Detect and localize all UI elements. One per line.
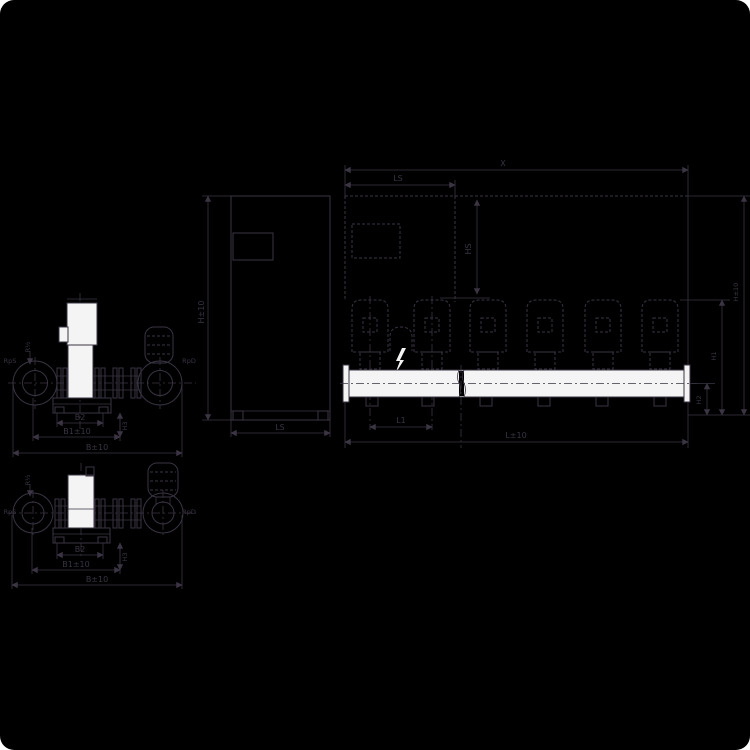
vent-port-label: R½ xyxy=(24,342,32,353)
terminal-box xyxy=(59,327,68,342)
dim-label-h3: H3 xyxy=(121,421,129,430)
dim-label-h2: H2 xyxy=(695,395,703,404)
diaphragm-tank xyxy=(148,463,178,505)
suction-port-label: RpS xyxy=(4,357,17,365)
control-box xyxy=(352,224,400,258)
discharge-port-label: RpD xyxy=(182,508,196,516)
front-view-b: B2 B1±10 B±10 H3 RpS RpD R½ xyxy=(4,463,196,589)
dim-label-h3: H3 xyxy=(121,552,129,561)
dim-label-ls-side: LS xyxy=(275,423,285,432)
dim-label-l1: L1 xyxy=(396,416,406,425)
base-frame xyxy=(53,398,111,413)
pump-motor xyxy=(585,300,621,352)
foot xyxy=(318,411,328,420)
vent-port-label: R½ xyxy=(24,475,32,486)
foot xyxy=(55,407,64,413)
control-box-side xyxy=(233,233,273,260)
motor-body xyxy=(67,303,97,345)
foot xyxy=(99,407,108,413)
foot xyxy=(233,411,243,420)
technical-drawing-canvas: B2 B1±10 B±10 H3 RpS RpD R½ xyxy=(0,0,750,750)
pump-body xyxy=(68,345,93,398)
dim-label-h-overall: H±10 xyxy=(197,301,206,324)
dim-label-l: L±10 xyxy=(505,431,526,440)
dim-label-hs: HS xyxy=(464,243,473,254)
front-view-a: B2 B1±10 B±10 H3 RpS RpD R½ xyxy=(4,293,196,457)
unit-side-outline xyxy=(231,196,330,420)
side-view: H±10 LS xyxy=(197,196,330,437)
main-view: X LS HS xyxy=(340,159,750,448)
discharge-port-label: RpD xyxy=(182,357,196,365)
pump-row xyxy=(352,300,678,369)
foot xyxy=(55,537,64,543)
dim-label-b1: B1±10 xyxy=(62,560,89,569)
suction-port-label: RpS xyxy=(4,508,17,516)
dim-label-b: B±10 xyxy=(86,575,108,584)
dim-label-b1: B1±10 xyxy=(63,427,90,436)
diaphragm-tank xyxy=(145,327,173,363)
pump-motor xyxy=(642,300,678,352)
pump-body xyxy=(68,475,94,528)
base-frame xyxy=(53,528,110,543)
dim-label-b2: B2 xyxy=(75,413,86,422)
dim-label-x: X xyxy=(500,159,506,168)
small-tank xyxy=(390,327,412,351)
manifold-feet xyxy=(366,397,666,406)
dim-label-ls: LS xyxy=(393,174,403,183)
pump-motor xyxy=(527,300,563,352)
dim-label-h1: H1 xyxy=(710,351,718,360)
foot xyxy=(98,537,107,543)
dim-label-h-total: H±10 xyxy=(732,283,740,302)
dim-label-b: B±10 xyxy=(86,443,108,452)
pump-system-dimension-drawing: B2 B1±10 B±10 H3 RpS RpD R½ xyxy=(0,0,750,750)
pump-motor xyxy=(470,300,506,352)
dim-label-b2: B2 xyxy=(75,545,86,554)
